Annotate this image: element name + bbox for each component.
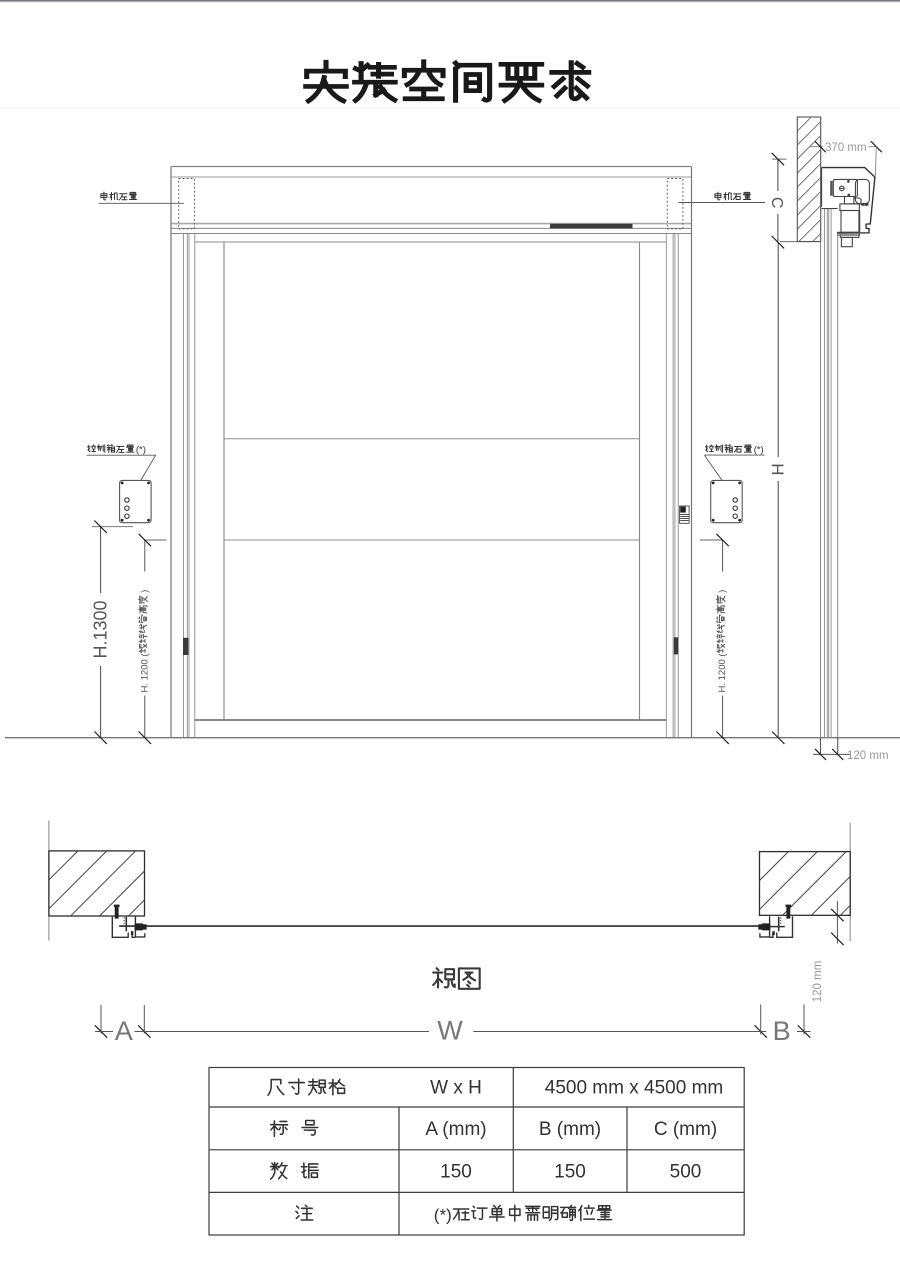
svg-text:4500 mm x 4500 mm: 4500 mm x 4500 mm bbox=[545, 1078, 723, 1099]
svg-text:H. 1200 (: H. 1200 ( bbox=[717, 653, 728, 693]
svg-text:C: C bbox=[768, 197, 785, 209]
svg-text:H. 1200 (: H. 1200 ( bbox=[139, 653, 150, 693]
svg-text:B (mm): B (mm) bbox=[539, 1119, 601, 1140]
svg-text:(*): (*) bbox=[136, 445, 146, 456]
svg-text:H.1300: H.1300 bbox=[90, 600, 110, 658]
svg-text:C (mm): C (mm) bbox=[654, 1119, 717, 1140]
svg-text:B: B bbox=[773, 1016, 791, 1046]
svg-text:): ) bbox=[139, 590, 150, 593]
svg-text:): ) bbox=[717, 590, 728, 593]
svg-text:H: H bbox=[769, 463, 788, 475]
svg-text:A: A bbox=[115, 1016, 133, 1046]
svg-text:370 mm: 370 mm bbox=[825, 142, 867, 154]
svg-text:(*): (*) bbox=[754, 445, 764, 456]
svg-text:120 mm: 120 mm bbox=[847, 750, 889, 762]
svg-text:(*): (*) bbox=[434, 1206, 452, 1225]
svg-text:120 mm: 120 mm bbox=[812, 961, 824, 1003]
svg-text:A (mm): A (mm) bbox=[425, 1119, 486, 1140]
svg-text:500: 500 bbox=[670, 1162, 702, 1183]
svg-text:W: W bbox=[437, 1016, 463, 1046]
svg-text:150: 150 bbox=[554, 1162, 586, 1183]
svg-text:150: 150 bbox=[440, 1162, 472, 1183]
svg-text:W x H: W x H bbox=[430, 1078, 482, 1099]
